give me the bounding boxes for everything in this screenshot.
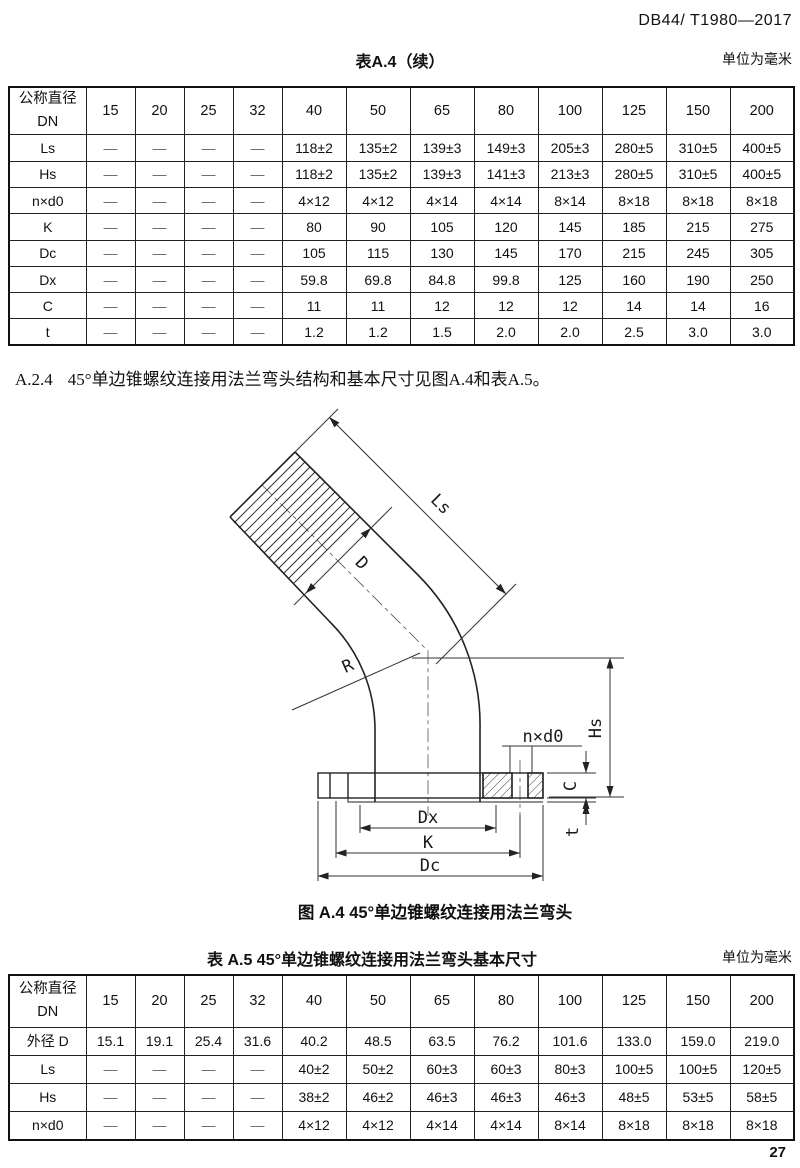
data-cell: — xyxy=(86,1112,135,1140)
row-label-cell: 外径 D xyxy=(9,1027,86,1055)
data-cell: 50±2 xyxy=(346,1055,410,1083)
data-cell: — xyxy=(184,1083,233,1111)
data-cell: 25.4 xyxy=(184,1027,233,1055)
table-row: Hs————38±246±246±346±346±348±553±558±5 xyxy=(9,1083,794,1111)
data-cell: — xyxy=(135,319,184,345)
data-cell: 48.5 xyxy=(346,1027,410,1055)
data-cell: 58±5 xyxy=(730,1083,794,1111)
table-a5: 公称直径 DN1520253240506580100125150200外径 D1… xyxy=(8,974,795,1141)
data-cell: 4×14 xyxy=(410,187,474,213)
data-cell: 4×12 xyxy=(346,1112,410,1140)
data-cell: — xyxy=(135,266,184,292)
data-cell: 38±2 xyxy=(282,1083,346,1111)
elbow-drawing: Ls D R Hs xyxy=(0,405,800,890)
data-cell: 40±2 xyxy=(282,1055,346,1083)
data-cell: 12 xyxy=(410,293,474,319)
data-cell: — xyxy=(135,293,184,319)
data-cell: 219.0 xyxy=(730,1027,794,1055)
data-cell: 149±3 xyxy=(474,135,538,161)
row-label-cell: Ls xyxy=(9,135,86,161)
data-cell: 159.0 xyxy=(666,1027,730,1055)
data-cell: 190 xyxy=(666,266,730,292)
header-cell: 20 xyxy=(135,975,184,1027)
data-cell: — xyxy=(86,187,135,213)
data-cell: 8×18 xyxy=(602,187,666,213)
data-cell: — xyxy=(184,1112,233,1140)
data-cell: 145 xyxy=(474,240,538,266)
header-cell: 100 xyxy=(538,975,602,1027)
table-row: 外径 D15.119.125.431.640.248.563.576.2101.… xyxy=(9,1027,794,1055)
row-label-cell: n×d0 xyxy=(9,1112,86,1140)
data-cell: 400±5 xyxy=(730,135,794,161)
table-a4: 公称直径 DN1520253240506580100125150200Ls———… xyxy=(8,86,795,346)
header-corner-cell: 公称直径 DN xyxy=(9,87,86,135)
data-cell: 46±2 xyxy=(346,1083,410,1111)
data-cell: 8×18 xyxy=(730,187,794,213)
data-cell: — xyxy=(233,1112,282,1140)
data-cell: — xyxy=(233,319,282,345)
data-cell: — xyxy=(86,319,135,345)
data-cell: 139±3 xyxy=(410,135,474,161)
data-cell: 60±3 xyxy=(474,1055,538,1083)
dim-t xyxy=(547,802,596,825)
header-cell: 200 xyxy=(730,975,794,1027)
data-cell: 1.2 xyxy=(282,319,346,345)
data-cell: 11 xyxy=(346,293,410,319)
data-cell: — xyxy=(233,161,282,187)
row-label-cell: C xyxy=(9,293,86,319)
header-cell: 65 xyxy=(410,87,474,135)
header-cell: 32 xyxy=(233,975,282,1027)
data-cell: 48±5 xyxy=(602,1083,666,1111)
data-cell: 8×18 xyxy=(602,1112,666,1140)
row-label-cell: n×d0 xyxy=(9,187,86,213)
table-row: n×d0————4×124×124×144×148×148×188×188×18 xyxy=(9,1112,794,1140)
header-cell: 80 xyxy=(474,87,538,135)
header-cell: 20 xyxy=(135,87,184,135)
data-cell: 4×12 xyxy=(282,187,346,213)
data-cell: 14 xyxy=(666,293,730,319)
data-cell: — xyxy=(184,319,233,345)
table-row: Hs————118±2135±2139±3141±3213±3280±5310±… xyxy=(9,161,794,187)
data-cell: 76.2 xyxy=(474,1027,538,1055)
figure-caption: 图 A.4 45°单边锥螺纹连接用法兰弯头 xyxy=(70,899,800,923)
table-a4-title-row: 表A.4（续） 单位为毫米 xyxy=(0,48,800,68)
table-row: Ls————118±2135±2139±3149±3205±3280±5310±… xyxy=(9,135,794,161)
header-cell: 15 xyxy=(86,87,135,135)
row-label-cell: Hs xyxy=(9,161,86,187)
data-cell: 101.6 xyxy=(538,1027,602,1055)
data-cell: — xyxy=(184,240,233,266)
header-cell: 32 xyxy=(233,87,282,135)
data-cell: 4×14 xyxy=(474,187,538,213)
header-cell: 40 xyxy=(282,975,346,1027)
data-cell: 4×14 xyxy=(410,1112,474,1140)
data-cell: — xyxy=(135,135,184,161)
data-cell: 280±5 xyxy=(602,161,666,187)
dim-ls xyxy=(295,409,516,664)
data-cell: 53±5 xyxy=(666,1083,730,1111)
dim-label-hs: Hs xyxy=(586,718,606,738)
data-cell: 1.5 xyxy=(410,319,474,345)
data-cell: 205±3 xyxy=(538,135,602,161)
page-number: 27 xyxy=(769,1144,786,1161)
data-cell: 280±5 xyxy=(602,135,666,161)
data-cell: 69.8 xyxy=(346,266,410,292)
data-cell: 141±3 xyxy=(474,161,538,187)
header-row: 公称直径 DN1520253240506580100125150200 xyxy=(9,87,794,135)
table-row: K————8090105120145185215275 xyxy=(9,214,794,240)
data-cell: — xyxy=(86,266,135,292)
row-label-cell: Dx xyxy=(9,266,86,292)
data-cell: 8×18 xyxy=(730,1112,794,1140)
header-cell: 15 xyxy=(86,975,135,1027)
data-cell: — xyxy=(233,240,282,266)
document-page: DB44/ T1980—2017 表A.4（续） 单位为毫米 公称直径 DN15… xyxy=(0,0,800,1168)
data-cell: 125 xyxy=(538,266,602,292)
header-row: 公称直径 DN1520253240506580100125150200 xyxy=(9,975,794,1027)
data-cell: — xyxy=(233,1083,282,1111)
data-cell: — xyxy=(184,266,233,292)
data-cell: 99.8 xyxy=(474,266,538,292)
data-cell: 8×18 xyxy=(666,1112,730,1140)
data-cell: — xyxy=(135,240,184,266)
data-cell: 135±2 xyxy=(346,135,410,161)
data-cell: 40.2 xyxy=(282,1027,346,1055)
row-label-cell: Hs xyxy=(9,1083,86,1111)
table-row: C————1111121212141416 xyxy=(9,293,794,319)
data-cell: 46±3 xyxy=(410,1083,474,1111)
data-cell: — xyxy=(86,1083,135,1111)
dim-label-r: R xyxy=(339,655,357,678)
header-cell: 25 xyxy=(184,975,233,1027)
centerlines xyxy=(262,485,520,816)
data-cell: 105 xyxy=(282,240,346,266)
data-cell: 3.0 xyxy=(666,319,730,345)
data-cell: 8×14 xyxy=(538,1112,602,1140)
data-cell: 4×12 xyxy=(346,187,410,213)
table-a4-title: 表A.4（续） xyxy=(0,48,800,72)
data-cell: 19.1 xyxy=(135,1027,184,1055)
data-cell: — xyxy=(135,214,184,240)
data-cell: 60±3 xyxy=(410,1055,474,1083)
data-cell: 46±3 xyxy=(474,1083,538,1111)
data-cell: 310±5 xyxy=(666,135,730,161)
data-cell: 46±3 xyxy=(538,1083,602,1111)
data-cell: — xyxy=(233,266,282,292)
data-cell: — xyxy=(233,135,282,161)
data-cell: — xyxy=(184,1055,233,1083)
header-cell: 100 xyxy=(538,87,602,135)
data-cell: 170 xyxy=(538,240,602,266)
data-cell: 118±2 xyxy=(282,161,346,187)
data-cell: 160 xyxy=(602,266,666,292)
data-cell: — xyxy=(184,187,233,213)
data-cell: 80 xyxy=(282,214,346,240)
data-cell: — xyxy=(135,187,184,213)
table-a5-title: 表 A.5 45°单边锥螺纹连接用法兰弯头基本尺寸 xyxy=(0,946,744,970)
clause-a24: A.2.445°单边锥螺纹连接用法兰弯头结构和基本尺寸见图A.4和表A.5。 xyxy=(15,365,550,390)
table-a5-title-row: 表 A.5 45°单边锥螺纹连接用法兰弯头基本尺寸 单位为毫米 xyxy=(0,946,800,966)
header-cell: 125 xyxy=(602,87,666,135)
clause-text: 45°单边锥螺纹连接用法兰弯头结构和基本尺寸见图A.4和表A.5。 xyxy=(68,370,550,389)
header-cell: 150 xyxy=(666,975,730,1027)
data-cell: 400±5 xyxy=(730,161,794,187)
header-cell: 150 xyxy=(666,87,730,135)
data-cell: 4×14 xyxy=(474,1112,538,1140)
data-cell: 245 xyxy=(666,240,730,266)
data-cell: 305 xyxy=(730,240,794,266)
data-cell: 63.5 xyxy=(410,1027,474,1055)
data-cell: 118±2 xyxy=(282,135,346,161)
data-cell: 133.0 xyxy=(602,1027,666,1055)
data-cell: 115 xyxy=(346,240,410,266)
data-cell: 2.0 xyxy=(538,319,602,345)
row-label-cell: t xyxy=(9,319,86,345)
data-cell: 31.6 xyxy=(233,1027,282,1055)
dim-label-t: t xyxy=(563,827,583,837)
data-cell: 135±2 xyxy=(346,161,410,187)
data-cell: — xyxy=(135,161,184,187)
data-cell: — xyxy=(86,214,135,240)
dim-d xyxy=(294,507,392,605)
table-a4-unit-note: 单位为毫米 xyxy=(722,49,792,69)
data-cell: 16 xyxy=(730,293,794,319)
data-cell: 2.0 xyxy=(474,319,538,345)
dim-label-nxd0: n×d0 xyxy=(523,727,564,747)
table-row: n×d0————4×124×124×144×148×148×188×188×18 xyxy=(9,187,794,213)
row-label-cell: Ls xyxy=(9,1055,86,1083)
header-cell: 125 xyxy=(602,975,666,1027)
data-cell: 120 xyxy=(474,214,538,240)
data-cell: 12 xyxy=(538,293,602,319)
data-cell: 130 xyxy=(410,240,474,266)
data-cell: 8×18 xyxy=(666,187,730,213)
table-row: Dx————59.869.884.899.8125160190250 xyxy=(9,266,794,292)
data-cell: — xyxy=(86,161,135,187)
data-cell: 90 xyxy=(346,214,410,240)
header-cell: 80 xyxy=(474,975,538,1027)
data-cell: — xyxy=(135,1083,184,1111)
data-cell: 185 xyxy=(602,214,666,240)
flange xyxy=(318,773,543,802)
data-cell: 100±5 xyxy=(602,1055,666,1083)
data-cell: — xyxy=(135,1055,184,1083)
dim-label-dx: Dx xyxy=(418,808,438,828)
data-cell: — xyxy=(233,1055,282,1083)
header-cell: 50 xyxy=(346,975,410,1027)
header-cell: 50 xyxy=(346,87,410,135)
data-cell: — xyxy=(86,293,135,319)
data-cell: 3.0 xyxy=(730,319,794,345)
header-cell: 40 xyxy=(282,87,346,135)
data-cell: — xyxy=(233,187,282,213)
data-cell: 8×14 xyxy=(538,187,602,213)
data-cell: 145 xyxy=(538,214,602,240)
data-cell: 105 xyxy=(410,214,474,240)
header-corner-cell: 公称直径 DN xyxy=(9,975,86,1027)
data-cell: — xyxy=(86,135,135,161)
row-label-cell: K xyxy=(9,214,86,240)
data-cell: — xyxy=(184,135,233,161)
data-cell: 15.1 xyxy=(86,1027,135,1055)
data-cell: 310±5 xyxy=(666,161,730,187)
data-cell: — xyxy=(184,214,233,240)
data-cell: — xyxy=(233,293,282,319)
table-row: Ls————40±250±260±360±380±3100±5100±5120±… xyxy=(9,1055,794,1083)
dim-label-dc: Dc xyxy=(420,856,440,876)
dim-label-k: K xyxy=(423,833,434,853)
data-cell: 1.2 xyxy=(346,319,410,345)
clause-number: A.2.4 xyxy=(15,370,53,389)
data-cell: 12 xyxy=(474,293,538,319)
dim-label-c: C xyxy=(561,781,581,791)
data-cell: 11 xyxy=(282,293,346,319)
dim-label-d: D xyxy=(351,553,372,574)
data-cell: 215 xyxy=(666,214,730,240)
data-cell: 275 xyxy=(730,214,794,240)
data-cell: 139±3 xyxy=(410,161,474,187)
table-row: t————1.21.21.52.02.02.53.03.0 xyxy=(9,319,794,345)
header-cell: 25 xyxy=(184,87,233,135)
data-cell: 120±5 xyxy=(730,1055,794,1083)
figure-a4: Ls D R Hs xyxy=(0,405,800,890)
data-cell: 2.5 xyxy=(602,319,666,345)
data-cell: — xyxy=(233,214,282,240)
header-cell: 200 xyxy=(730,87,794,135)
table-a5-unit-note: 单位为毫米 xyxy=(722,947,792,967)
data-cell: 80±3 xyxy=(538,1055,602,1083)
data-cell: — xyxy=(86,240,135,266)
data-cell: 100±5 xyxy=(666,1055,730,1083)
data-cell: 250 xyxy=(730,266,794,292)
data-cell: — xyxy=(184,161,233,187)
dim-nxd0 xyxy=(502,746,582,773)
data-cell: 215 xyxy=(602,240,666,266)
data-cell: — xyxy=(135,1112,184,1140)
standard-code: DB44/ T1980—2017 xyxy=(638,12,792,30)
data-cell: 4×12 xyxy=(282,1112,346,1140)
data-cell: 14 xyxy=(602,293,666,319)
data-cell: 213±3 xyxy=(538,161,602,187)
data-cell: — xyxy=(184,293,233,319)
data-cell: 84.8 xyxy=(410,266,474,292)
table-row: Dc————105115130145170215245305 xyxy=(9,240,794,266)
row-label-cell: Dc xyxy=(9,240,86,266)
dim-label-ls: Ls xyxy=(426,490,455,519)
data-cell: 59.8 xyxy=(282,266,346,292)
dim-r xyxy=(292,653,420,710)
header-cell: 65 xyxy=(410,975,474,1027)
data-cell: — xyxy=(86,1055,135,1083)
